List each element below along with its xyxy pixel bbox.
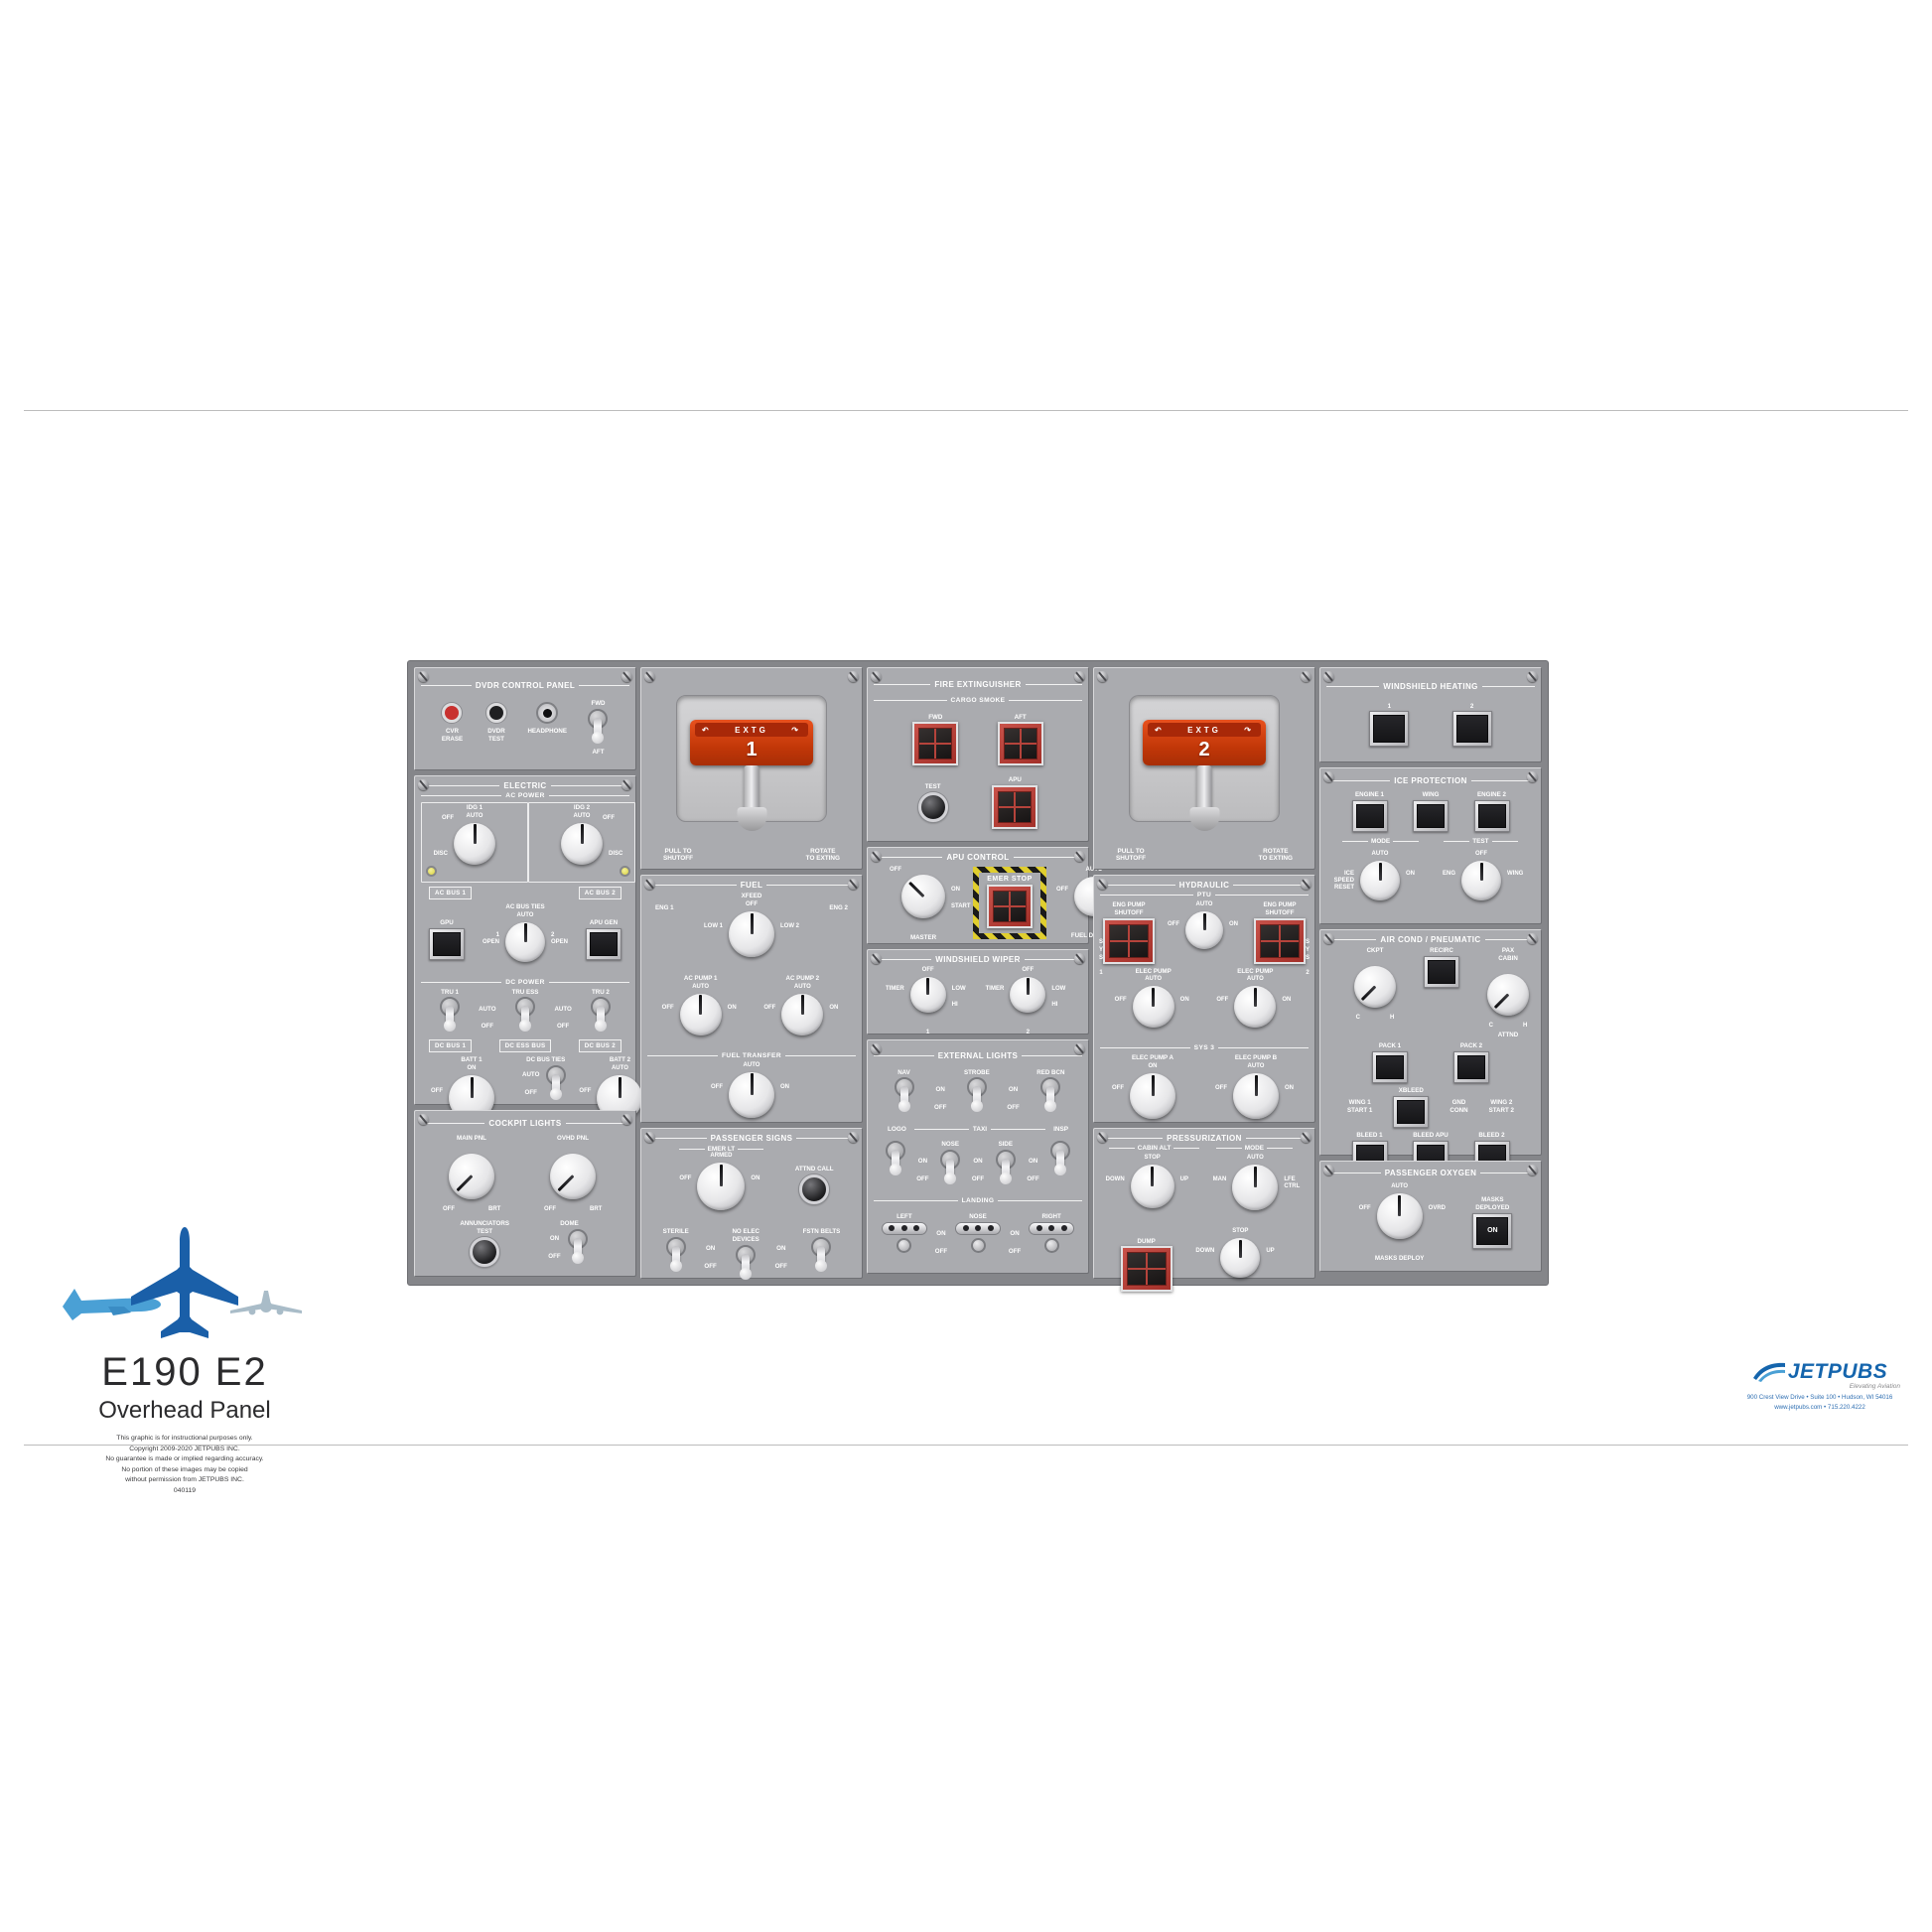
apu-emer-stop-button[interactable]: EMER STOP bbox=[973, 867, 1046, 939]
overhead-panel: DVDR CONTROL PANEL CVR ERASEDVDR TESTHEA… bbox=[407, 660, 1549, 1286]
sys2-elec-pump-knob[interactable]: ELEC PUMPOFFAUTOON bbox=[1206, 968, 1304, 1042]
poster-model-title: E190 E2 bbox=[52, 1350, 318, 1395]
poster-branding: E190 E2 Overhead Panel This graphic is f… bbox=[52, 1221, 318, 1496]
landing-left-switch[interactable]: LEFT bbox=[882, 1213, 927, 1253]
dc-bus-row: DC BUS 1DC ESS BUSDC BUS 2 bbox=[421, 1039, 629, 1052]
poster-fine-print: This graphic is for instructional purpos… bbox=[52, 1434, 318, 1496]
poster-subtitle: Overhead Panel bbox=[52, 1397, 318, 1425]
apu-extinguisher-button[interactable]: APU bbox=[992, 776, 1037, 829]
sterile-switch[interactable]: STERILE bbox=[663, 1228, 689, 1275]
ice-mode-knob[interactable]: ICE SPEED RESETAUTOON bbox=[1332, 851, 1428, 914]
fire-extinguisher-title: FIRE EXTINGUISHER bbox=[874, 680, 1082, 689]
nav-lights-switch[interactable]: NAV bbox=[892, 1069, 917, 1116]
section-windshield-wiper: WINDSHIELD WIPER TIMEROFFLOWHI1TIMEROFFL… bbox=[867, 949, 1089, 1035]
red-bcn-switch[interactable]: RED BCN bbox=[1036, 1069, 1064, 1116]
auto-off-labels: AUTO OFF bbox=[554, 1001, 571, 1036]
emer-lt-attnd-row: EMER LTOFFARMEDONATTND CALL bbox=[647, 1146, 856, 1224]
on-off-labels: ON OFF bbox=[1007, 1081, 1019, 1117]
on-off-labels: ON OFF bbox=[972, 1153, 984, 1188]
windshield-heating-title: WINDSHIELD HEATING bbox=[1326, 682, 1535, 691]
eng-pump-shutoff-row: ENG PUMP SHUTOFFOFFAUTOONENG PUMP SHUTOF… bbox=[1100, 901, 1309, 964]
strobe-lights-switch[interactable]: STROBE bbox=[964, 1069, 990, 1116]
rotate-right-arrow-icon: ↷ bbox=[791, 726, 801, 735]
jetpubs-address: 900 Crest View Drive • Suite 100 • Hudso… bbox=[1729, 1393, 1910, 1413]
test-apu-extinguisher-row: TESTAPU bbox=[874, 776, 1082, 829]
section-air-cond-pneumatic: AIR COND / PNEUMATIC CKPTCHRECIRCPAX CAB… bbox=[1319, 929, 1542, 1156]
lfe-knob[interactable]: DOWNSTOPUPLFE bbox=[1192, 1228, 1288, 1302]
landing-right-switch[interactable]: RIGHT bbox=[1029, 1213, 1074, 1253]
apu-controls-row: OFFONSTARTMASTEREMER STOPOFFAUTOONFUEL D… bbox=[874, 865, 1082, 942]
cvr-erase-button[interactable]: CVR ERASE bbox=[439, 700, 465, 744]
on-off-labels: ON OFF bbox=[775, 1240, 787, 1276]
landing-subtitle: LANDING bbox=[874, 1197, 1082, 1204]
fire-test-button[interactable]: TEST bbox=[918, 783, 948, 822]
nav-strobe-bcn-row: NAVON OFFSTROBEON OFFRED BCN bbox=[874, 1069, 1082, 1117]
pack1-button[interactable]: PACK 1 bbox=[1372, 1042, 1408, 1083]
anti-ice-buttons-row: ENGINE 1WINGENGINE 2 bbox=[1326, 791, 1535, 832]
section-fuel: FUEL ENG 1XFEEDLOW 1OFFLOW 2ENG 2 AC PUM… bbox=[640, 875, 863, 1123]
logo-taxi-insp-header: LOGO TAXI INSP bbox=[874, 1126, 1082, 1133]
masks-deploy-knob[interactable]: OFFAUTOOVRDMASKS DEPLOY bbox=[1349, 1183, 1450, 1263]
oxygen-controls-row: OFFAUTOOVRDMASKS DEPLOYMASKS DEPLOYEDON bbox=[1326, 1183, 1535, 1263]
press-mode-knob[interactable]: MANAUTOLFE CTRL bbox=[1204, 1155, 1306, 1224]
ac-bus-ties-knob[interactable]: AC BUS TIES1 OPENAUTO2 OPEN bbox=[478, 903, 573, 976]
engine2-anti-ice-button[interactable]: ENGINE 2 bbox=[1474, 791, 1510, 832]
dc-ess-bus-label: DC ESS BUS bbox=[499, 1039, 552, 1052]
engine1-anti-ice-button[interactable]: ENGINE 1 bbox=[1352, 791, 1388, 832]
panel-column-5: WINDSHIELD HEATING 12 ICE PROTECTION ENG… bbox=[1319, 667, 1542, 1279]
sys3-pumps-row: ELEC PUMP AONOFFELEC PUMP BOFFAUTOON bbox=[1100, 1054, 1309, 1133]
tru-ess-switch[interactable]: TRU ESS bbox=[512, 989, 539, 1035]
idg-row: IDG 1DISCOFFAUTOIDG 2AUTOOFFDISC bbox=[421, 802, 629, 883]
fire-handle-1-recess: ↶EXTG↷ 1 bbox=[676, 695, 827, 822]
section-electric: ELECTRIC AC POWER IDG 1DISCOFFAUTOIDG 2A… bbox=[414, 775, 636, 1105]
windshield-heat-2-button[interactable]: 2 bbox=[1452, 703, 1492, 748]
xbleed-row: WING 1 START 1XBLEEDGND CONNWING 2 START… bbox=[1326, 1087, 1535, 1128]
panel-column-2: ↶EXTG↷ 1 PULL TO SHUTOFFROTATE TO EXTING… bbox=[640, 667, 863, 1279]
cabin-alt-mode-header: CABIN ALT MODE bbox=[1100, 1145, 1309, 1152]
pressurization-title: PRESSURIZATION bbox=[1100, 1134, 1309, 1143]
eng1-label: ENG 1 bbox=[655, 904, 674, 912]
main-pnl-knob[interactable]: MAIN PNLOFFBRT bbox=[421, 1135, 522, 1213]
windshield-heat-row: 12 bbox=[1326, 703, 1535, 748]
pack2-button[interactable]: PACK 2 bbox=[1453, 1042, 1489, 1083]
cargo-smoke-subtitle: CARGO SMOKE bbox=[874, 697, 1082, 704]
ptu-knob[interactable]: OFFAUTOON bbox=[1158, 901, 1251, 963]
section-ice-protection: ICE PROTECTION ENGINE 1WINGENGINE 2 MODE… bbox=[1319, 767, 1542, 924]
elec-pump-b-knob[interactable]: ELEC PUMP BOFFAUTOON bbox=[1205, 1054, 1307, 1133]
temp-recirc-row: CKPTCHRECIRCPAX CABINCHATTND bbox=[1326, 947, 1535, 1038]
power-available-light bbox=[426, 866, 437, 877]
idg1-knob[interactable]: IDG 1DISCOFFAUTO bbox=[421, 802, 528, 883]
fire-handle-1-number: 1 bbox=[690, 737, 813, 762]
wing2-start2-label: WING 2 START 2 bbox=[1489, 1099, 1514, 1115]
fire-handle-1[interactable]: ↶EXTG↷ 1 bbox=[690, 720, 813, 765]
wing-anti-ice-button[interactable]: WING bbox=[1413, 791, 1449, 832]
rotate-left-arrow-icon: ↶ bbox=[1155, 726, 1165, 735]
dvdr-controls-row: CVR ERASEDVDR TESTHEADPHONEFWDAFT bbox=[421, 700, 629, 757]
on-off-labels: ON OFF bbox=[935, 1225, 947, 1261]
xbleed-button[interactable]: XBLEED bbox=[1393, 1087, 1429, 1128]
passenger-oxygen-title: PASSENGER OXYGEN bbox=[1326, 1169, 1535, 1177]
taxi-side-switch[interactable]: SIDE bbox=[993, 1141, 1019, 1187]
emer-lt-knob[interactable]: EMER LTOFFARMEDON bbox=[669, 1146, 772, 1224]
sys1-elec-pump-knob[interactable]: ELEC PUMPOFFAUTOON bbox=[1105, 968, 1202, 1042]
ptu-subtitle: PTU bbox=[1100, 892, 1309, 898]
tru1-switch[interactable]: TRU 1 bbox=[437, 989, 463, 1035]
ac-pump2-knob[interactable]: AC PUMP 2OFFAUTOON bbox=[754, 975, 851, 1049]
landing-lights-row: LEFTON OFFNOSEON OFFRIGHT bbox=[874, 1213, 1082, 1261]
apu-gen-button[interactable]: APU GEN bbox=[586, 919, 621, 960]
fuel-transfer-row: OFFAUTOON bbox=[647, 1062, 856, 1132]
elec-pump-a-knob[interactable]: ELEC PUMP AONOFF bbox=[1102, 1054, 1203, 1133]
windshield-wiper-title: WINDSHIELD WIPER bbox=[874, 955, 1082, 964]
section-windshield-heating: WINDSHIELD HEATING 12 bbox=[1319, 667, 1542, 762]
panel-column-1: DVDR CONTROL PANEL CVR ERASEDVDR TESTHEA… bbox=[414, 667, 636, 1279]
ice-protection-title: ICE PROTECTION bbox=[1326, 776, 1535, 785]
dvdr-fwd-aft-switch[interactable]: FWDAFT bbox=[585, 700, 611, 757]
apu-control-title: APU CONTROL bbox=[874, 853, 1082, 862]
section-fire-extinguisher: FIRE EXTINGUISHER CARGO SMOKE FWDAFT TES… bbox=[867, 667, 1089, 842]
wing1-start1-label: WING 1 START 1 bbox=[1347, 1099, 1372, 1115]
on-off-labels: ON OFF bbox=[934, 1081, 946, 1117]
logo-taxi-insp-row: ON OFFNOSEON OFFSIDEON OFF bbox=[874, 1141, 1082, 1188]
wiper1-knob[interactable]: TIMEROFFLOWHI1 bbox=[883, 967, 974, 1036]
jetpubs-swoosh-icon bbox=[1752, 1360, 1786, 1382]
fstn-belts-switch[interactable]: FSTN BELTS bbox=[803, 1228, 841, 1275]
logo-lights-switch[interactable] bbox=[883, 1141, 908, 1178]
dvdr-title: DVDR CONTROL PANEL bbox=[421, 681, 629, 690]
annunciators-test-button[interactable]: ANNUNCIATORS TEST bbox=[460, 1220, 509, 1267]
cabin-alt-knob[interactable]: DOWNSTOPUP bbox=[1103, 1155, 1202, 1222]
eng-pump2-shutoff-button[interactable]: ENG PUMP SHUTOFF bbox=[1254, 901, 1306, 964]
aft-cargo-extinguisher-button[interactable]: AFT bbox=[998, 714, 1043, 766]
fuel-xfeed-knob[interactable]: XFEEDLOW 1OFFLOW 2 bbox=[701, 893, 802, 971]
hydraulic-title: HYDRAULIC bbox=[1100, 881, 1309, 890]
fuel-transfer-subtitle: FUEL TRANSFER bbox=[647, 1052, 856, 1059]
section-external-lights: EXTERNAL LIGHTS NAVON OFFSTROBEON OFFRED… bbox=[867, 1039, 1089, 1274]
ac-bus-row: AC BUS 1AC BUS 2 bbox=[421, 887, 629, 899]
gpu-apu-gen-row: GPUAC BUS TIES1 OPENAUTO2 OPENAPU GEN bbox=[421, 903, 629, 976]
aircraft-silhouette-graphic bbox=[61, 1221, 309, 1348]
ac-pump1-knob[interactable]: AC PUMP 1OFFAUTOON bbox=[652, 975, 750, 1049]
dc-bus2-label: DC BUS 2 bbox=[579, 1039, 621, 1052]
attnd-call-button[interactable]: ATTND CALL bbox=[795, 1166, 834, 1204]
elec-pumps-row: ELEC PUMPOFFAUTOONELEC PUMPOFFAUTOON bbox=[1100, 968, 1309, 1042]
masks-deployed-button[interactable]: MASKS DEPLOYEDON bbox=[1472, 1196, 1512, 1249]
sys1-label: S Y S 1 bbox=[1099, 939, 1103, 978]
gnd-conn-label: GND CONN bbox=[1449, 1099, 1467, 1115]
auto-off-labels: AUTO OFF bbox=[479, 1001, 495, 1036]
passenger-signs-title: PASSENGER SIGNS bbox=[647, 1134, 856, 1143]
ovhd-pnl-knob[interactable]: OVHD PNLOFFBRT bbox=[522, 1135, 623, 1213]
headphone-jack[interactable]: HEADPHONE bbox=[527, 700, 567, 736]
sys2-label: S Y S 2 bbox=[1306, 939, 1310, 978]
section-pressurization: PRESSURIZATION CABIN ALT MODE DOWNSTOPUP… bbox=[1093, 1128, 1315, 1279]
ac-bus2-label: AC BUS 2 bbox=[579, 887, 621, 899]
fire-handle-1-stem[interactable] bbox=[745, 765, 759, 817]
idg2-knob[interactable]: IDG 2AUTOOFFDISC bbox=[528, 802, 635, 883]
dump-lfe-row: DUMPDOWNSTOPUPLFE bbox=[1100, 1228, 1309, 1302]
jetpubs-tagline: Elevating Aviation bbox=[1729, 1383, 1910, 1390]
ac-pumps-row: AC PUMP 1OFFAUTOONAC PUMP 2OFFAUTOON bbox=[647, 975, 856, 1049]
recirc-button[interactable]: RECIRC bbox=[1424, 947, 1459, 988]
fire-handle-2-recess: ↶EXTG↷ 2 bbox=[1129, 695, 1280, 822]
fuel-title: FUEL bbox=[647, 881, 856, 890]
dome-light-switch[interactable]: DOMEON OFF bbox=[548, 1220, 590, 1267]
external-lights-title: EXTERNAL LIGHTS bbox=[874, 1051, 1082, 1060]
jetpubs-logo-block: JETPUBS Elevating Aviation 900 Crest Vie… bbox=[1729, 1360, 1910, 1413]
panel-column-4: ↶EXTG↷ 2 PULL TO SHUTOFFROTATE TO EXTING… bbox=[1093, 667, 1315, 1279]
poster-top-border bbox=[24, 410, 1908, 411]
pax-cabin-temp-knob[interactable]: PAX CABINCHATTND bbox=[1459, 947, 1557, 1038]
fuel-transfer-knob[interactable]: OFFAUTOON bbox=[701, 1062, 802, 1132]
section-dvdr-control-panel: DVDR CONTROL PANEL CVR ERASEDVDR TESTHEA… bbox=[414, 667, 636, 770]
apu-master-knob[interactable]: OFFONSTARTMASTER bbox=[874, 865, 973, 942]
section-apu-control: APU CONTROL OFFONSTARTMASTEREMER STOPOFF… bbox=[867, 847, 1089, 944]
wiper2-knob[interactable]: TIMEROFFLOWHI2 bbox=[982, 967, 1073, 1036]
cargo-extinguisher-row: FWDAFT bbox=[874, 714, 1082, 766]
annunciator-dome-row: ANNUNCIATORS TESTDOMEON OFF bbox=[421, 1220, 629, 1267]
section-passenger-signs: PASSENGER SIGNS EMER LTOFFARMEDONATTND C… bbox=[640, 1128, 863, 1279]
ice-mode-test-header: MODE TEST bbox=[1326, 838, 1535, 845]
taxi-nose-switch[interactable]: NOSE bbox=[937, 1141, 963, 1187]
section-cockpit-lights: COCKPIT LIGHTS MAIN PNLOFFBRTOVHD PNLOFF… bbox=[414, 1110, 636, 1277]
cabin-alt-mode-row: DOWNSTOPUPMANAUTOLFE CTRL bbox=[1100, 1155, 1309, 1224]
on-off-labels: ON OFF bbox=[1027, 1153, 1038, 1188]
ac-power-subtitle: AC POWER bbox=[421, 792, 629, 799]
fire-handle-1-extg-strip: ↶EXTG↷ bbox=[695, 723, 808, 737]
tru-row: TRU 1AUTO OFFTRU ESSAUTO OFFTRU 2 bbox=[421, 989, 629, 1036]
insp-lights-switch[interactable] bbox=[1047, 1141, 1073, 1178]
on-off-labels: ON OFF bbox=[916, 1153, 928, 1188]
eng2-label: ENG 2 bbox=[829, 904, 848, 912]
ice-knobs-row: ICE SPEED RESETAUTOONENGOFFWING bbox=[1326, 851, 1535, 914]
jetpubs-wordmark: JETPUBS bbox=[1788, 1361, 1887, 1382]
landing-nose-switch[interactable]: NOSE bbox=[955, 1213, 1001, 1253]
wiper-knobs-row: TIMEROFFLOWHI1TIMEROFFLOWHI2 bbox=[874, 967, 1082, 1036]
cockpit-lights-title: COCKPIT LIGHTS bbox=[421, 1119, 629, 1128]
electric-title: ELECTRIC bbox=[421, 781, 629, 790]
packs-row: PACK 1PACK 2 bbox=[1326, 1042, 1535, 1083]
fire-handle-2-stem[interactable] bbox=[1197, 765, 1212, 817]
section-fire-handle-1: ↶EXTG↷ 1 PULL TO SHUTOFFROTATE TO EXTING bbox=[640, 667, 863, 870]
fire-handle-2[interactable]: ↶EXTG↷ 2 bbox=[1143, 720, 1266, 765]
rotate-left-arrow-icon: ↶ bbox=[702, 726, 712, 735]
ac-bus1-label: AC BUS 1 bbox=[429, 887, 472, 899]
dc-bus-ties-switch[interactable]: DC BUS TIESAUTO OFF bbox=[522, 1056, 569, 1103]
tru2-switch[interactable]: TRU 2 bbox=[588, 989, 614, 1035]
dvdr-test-button[interactable]: DVDR TEST bbox=[483, 700, 509, 744]
panel-column-3: FIRE EXTINGUISHER CARGO SMOKE FWDAFT TES… bbox=[867, 667, 1089, 1279]
power-available-light bbox=[620, 866, 630, 877]
ckpt-temp-knob[interactable]: CKPTCH bbox=[1326, 947, 1424, 1022]
eng-pump1-shutoff-button[interactable]: ENG PUMP SHUTOFF bbox=[1103, 901, 1155, 964]
sys3-subtitle: SYS 3 bbox=[1100, 1044, 1309, 1051]
fire-handle-2-extg-strip: ↶EXTG↷ bbox=[1148, 723, 1261, 737]
section-passenger-oxygen: PASSENGER OXYGEN OFFAUTOOVRDMASKS DEPLOY… bbox=[1319, 1161, 1542, 1272]
gpu-button[interactable]: GPU bbox=[429, 919, 465, 960]
cabin-toggles-row: STERILEON OFFNO ELEC DEVICESON OFFFSTN B… bbox=[647, 1228, 856, 1283]
section-hydraulic: HYDRAULIC PTU S Y S 1 S Y S 2 ENG PUMP S… bbox=[1093, 875, 1315, 1123]
xfeed-row: ENG 1XFEEDLOW 1OFFLOW 2ENG 2 bbox=[647, 893, 856, 971]
fire-handle-2-number: 2 bbox=[1143, 737, 1266, 762]
no-elec-devices-switch[interactable]: NO ELEC DEVICES bbox=[732, 1228, 759, 1283]
windshield-heat-1-button[interactable]: 1 bbox=[1369, 703, 1409, 748]
fwd-cargo-extinguisher-button[interactable]: FWD bbox=[912, 714, 958, 766]
rotate-right-arrow-icon: ↷ bbox=[1244, 726, 1254, 735]
ice-test-knob[interactable]: ENGOFFWING bbox=[1434, 851, 1529, 914]
dc-bus1-label: DC BUS 1 bbox=[429, 1039, 472, 1052]
on-off-labels: ON OFF bbox=[704, 1240, 716, 1276]
dc-power-subtitle: DC POWER bbox=[421, 979, 629, 986]
on-off-labels: ON OFF bbox=[1009, 1225, 1021, 1261]
panel-light-knobs-row: MAIN PNLOFFBRTOVHD PNLOFFBRTPEDESTALOFFB… bbox=[421, 1135, 629, 1213]
dump-button[interactable]: DUMP bbox=[1121, 1238, 1173, 1293]
air-cond-title: AIR COND / PNEUMATIC bbox=[1326, 935, 1535, 944]
section-fire-handle-2: ↶EXTG↷ 2 PULL TO SHUTOFFROTATE TO EXTING bbox=[1093, 667, 1315, 870]
